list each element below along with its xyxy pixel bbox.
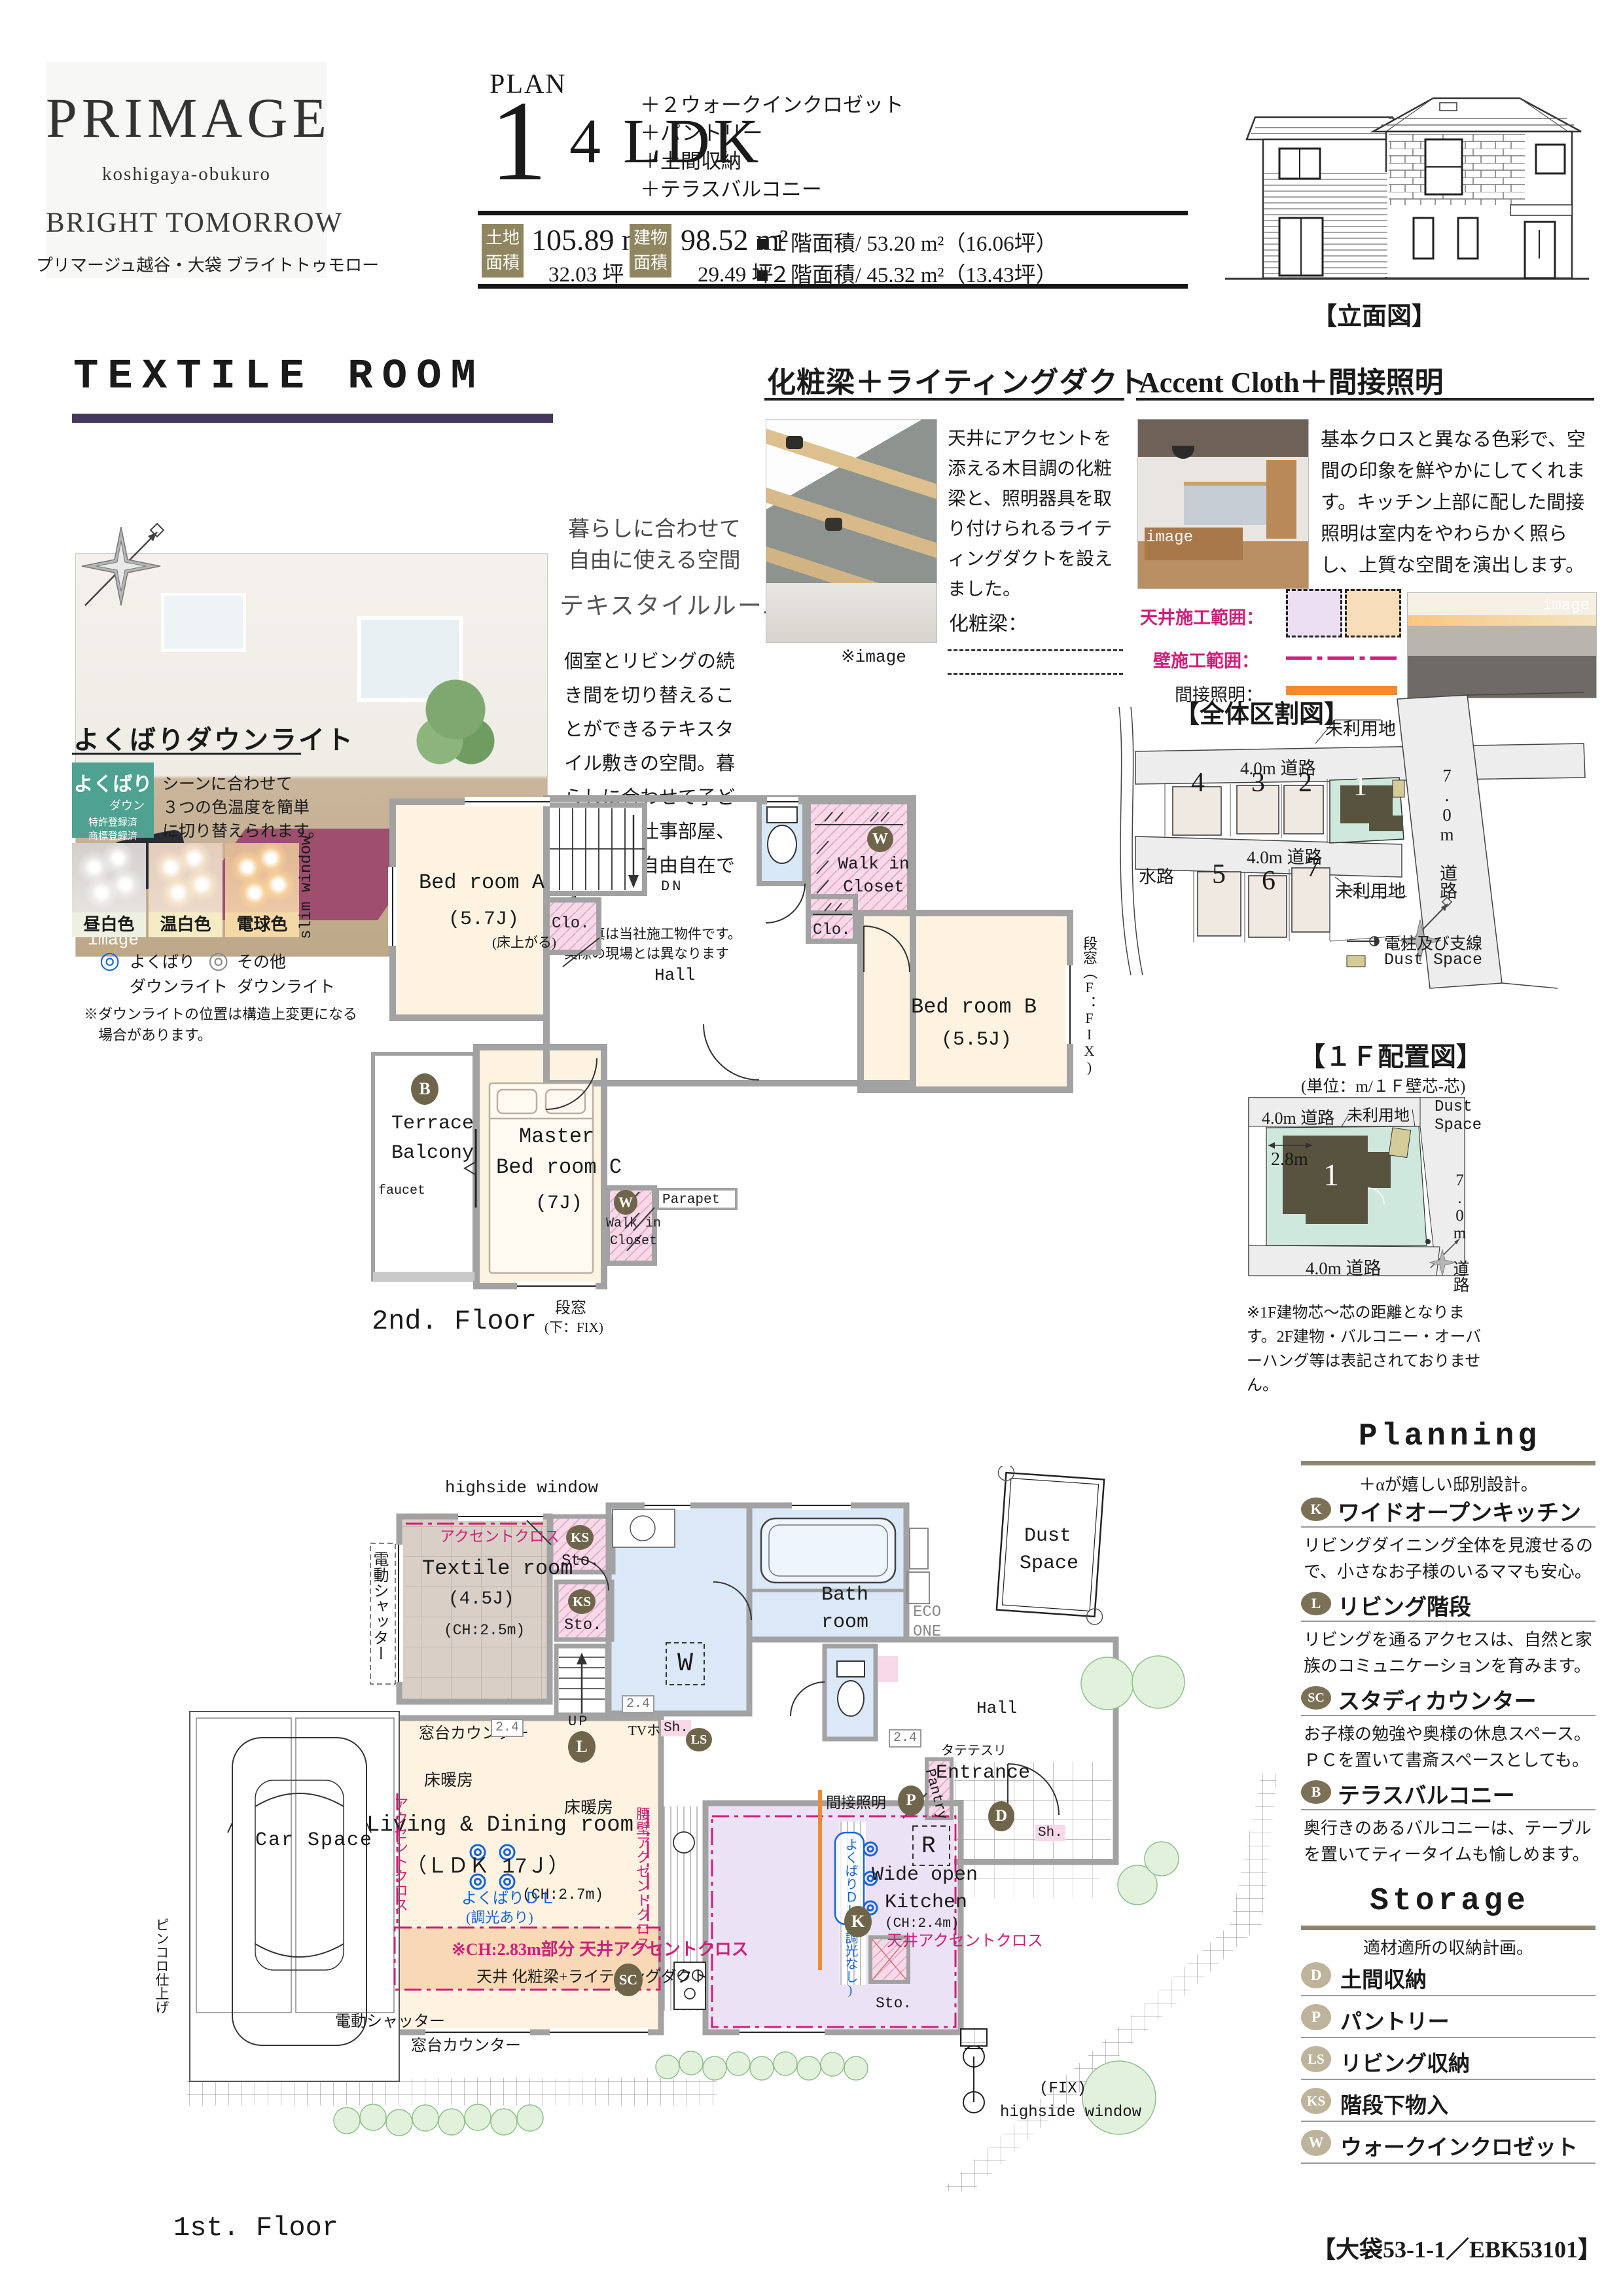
f1-accent-left: アクセントクロス — [389, 1797, 410, 1912]
plan-feature-1: ＋２ウォークインクロゼット — [640, 88, 904, 118]
sitemap-unused-top: 未利用地 — [1325, 715, 1396, 740]
f1-beam-duct: 天井 化粧梁+ライティングダクト — [476, 1964, 708, 1986]
floor1-area: ■１階面積/ 53.20 m²（16.06坪） — [756, 226, 1058, 257]
flyer-page: PRIMAGE koshigaya-obukuro BRIGHT TOMORRO… — [0, 0, 1623, 2296]
f1-bath-2: room — [821, 1611, 868, 1634]
layout1f-dim: 2.8m — [1271, 1149, 1308, 1170]
accent-title: Accent Cloth＋間接照明 — [1139, 359, 1444, 401]
storage-badge-doma: D — [1301, 1962, 1331, 1988]
footer-code: 【大袋53-1-1／EBK53101】 — [1312, 2231, 1601, 2265]
f1-k-badge: K — [844, 1906, 872, 1937]
land-area-badge: 土地面積 — [482, 224, 524, 278]
f1-ch283: ※CH:2.83m部分 天井アクセントクロス — [452, 1936, 749, 1960]
f2-caption: 2nd. Floor — [372, 1306, 537, 1337]
textile-title-bar — [72, 414, 553, 423]
planning-item-kitchen: ワイドオープンキッチン — [1338, 1495, 1581, 1527]
f1-eco-2: ONE — [913, 1623, 941, 1641]
f2-hall: Hall — [654, 965, 695, 985]
f1-textile-size: (4.5J) — [448, 1589, 514, 1609]
layout1f-road-top: 4.0m 道路 — [1262, 1105, 1334, 1129]
planning-line-1 — [1301, 1526, 1596, 1528]
f1-bath-1: Bath — [821, 1584, 868, 1606]
yokubari-badge-line2: ダウン — [72, 797, 145, 814]
f1-dim-pantry: 2.4 — [889, 1729, 921, 1748]
land-tsubo: 32.03 坪 — [548, 257, 624, 288]
textile-photo-plant — [416, 678, 495, 783]
sitemap-lot-7: 7 — [1306, 852, 1320, 884]
beam-photo — [766, 419, 937, 643]
accent-body: 基本クロスと異なる色彩で、空間の印象を鮮やかにしてくれます。キッチン上部に配した… — [1321, 424, 1596, 581]
accent-photo-pendant — [1172, 446, 1194, 459]
f1-textile-room: Textile room — [422, 1556, 573, 1581]
accent-photo-counter — [1184, 482, 1269, 525]
storage-title: Storage — [1355, 1884, 1544, 1919]
planning-desc-study: お子様の勉強や奥様の休息スペース。ＰＣを置いて書斎スペースとしても。 — [1304, 1721, 1595, 1774]
f1-highside-top: highside window — [445, 1478, 598, 1498]
sitemap-lot-2: 2 — [1298, 767, 1312, 798]
downlight-legend1-a: よくばり — [130, 949, 195, 973]
land-label-1: 土地 — [482, 226, 524, 251]
yokubari-badge-line4: 商標登録済 — [72, 829, 154, 842]
f2-closet2: Clo. — [813, 922, 851, 939]
bldg-label-2: 面積 — [630, 251, 671, 276]
f2-bedroomA: Bed room A — [419, 870, 544, 895]
plan-feature-3: ＋土間収納 — [640, 145, 741, 174]
storage-line-1 — [1301, 1995, 1596, 1996]
downlight-title: よくばりダウンライト — [73, 719, 355, 757]
f2-wic2-badge: W — [614, 1190, 637, 1215]
f1-tatetesuri: タテテスリ — [941, 1740, 1007, 1759]
f1-washroom-w: W — [677, 1649, 693, 1679]
f2-wic2-label2: Closet — [594, 1234, 673, 1249]
f1-fix-highside: highside window — [1000, 2104, 1141, 2121]
accent-title-line — [1136, 398, 1594, 401]
downlight-mode-warmwhite: 温白色 — [149, 912, 223, 937]
f1-ydl-2: (調光あり) — [466, 1906, 533, 1927]
planning-desc-balcony: 奥行きのあるバルコニーは、テーブルを置いてティータイムも愉しめます。 — [1304, 1816, 1595, 1868]
f1-eco-1: ECO — [913, 1604, 941, 1621]
f2-slim-window: slim window — [298, 836, 315, 939]
textile-h1: 暮らしに合わせて自由に使える空間 — [560, 514, 749, 577]
layout1f-note: ※1F建物芯～芯の距離となります。2F建物・バルコニー・オーバーハング等は表記さ… — [1247, 1301, 1482, 1398]
f1-indirect: 間接照明 — [826, 1790, 886, 1812]
downlight-body-2: ３つの色温度を簡単 — [162, 795, 310, 818]
f1-counter-bottom: 窓台カウンター — [411, 2032, 521, 2055]
planning-line-2 — [1301, 1621, 1596, 1622]
sitemap-lot-6: 6 — [1262, 865, 1275, 897]
planning-title-bar — [1301, 1461, 1596, 1465]
layout1f-road-bottom: 4.0m 道路 — [1306, 1254, 1382, 1280]
layout1f-title: 【１Ｆ配置図】 — [1299, 1035, 1482, 1073]
f1-dust-2: Space — [1020, 1552, 1079, 1575]
planning-item-stairs: リビング階段 — [1338, 1589, 1471, 1621]
f2-wic-label1: Walk in — [821, 854, 926, 874]
f1-ks2-badge: KS — [568, 1589, 596, 1614]
accent-legend1-swatch-lavender — [1286, 589, 1342, 637]
beam-photo-light2 — [825, 518, 842, 531]
downlight-legend2-a: その他 — [237, 949, 286, 973]
layout1f-dust-2: Space — [1435, 1117, 1482, 1134]
f2-closetA: Clo. — [552, 915, 590, 933]
layout1f-lot: 1 — [1323, 1157, 1339, 1193]
accent-legend2-label: 壁施工範囲： — [1153, 647, 1259, 672]
downlight-photo-daylight — [72, 843, 146, 912]
textile-title: TEXTILE ROOM — [73, 353, 485, 401]
f2-bedroomA-size: (5.7J) — [448, 908, 519, 931]
storage-line-4 — [1301, 2121, 1596, 2122]
f1-p-badge: P — [898, 1785, 924, 1816]
logo-name: PRIMAGE — [46, 85, 327, 151]
storage-item-doma: 土間収納 — [1340, 1962, 1427, 1994]
beam-photo-beam2 — [766, 484, 937, 566]
f1-dim-textile: 2.4 — [491, 1719, 524, 1737]
storage-item-living: リビング収納 — [1340, 2046, 1470, 2077]
bldg-label-1: 建物 — [630, 226, 671, 251]
beam-legend-label: 化粧梁： — [949, 607, 1027, 636]
yokubari-badge: よくばり ダウン 特許登録済 商標登録済 — [72, 762, 154, 838]
f2-bedroomB-size: (5.5J) — [941, 1029, 1012, 1051]
elevation-caption: 【立面図】 — [1312, 296, 1436, 332]
storage-title-bar — [1301, 1926, 1596, 1930]
layout1f-road-right: 7.0m 道路 — [1448, 1172, 1471, 1293]
f1-kitchen-2: Kitchen — [885, 1892, 967, 1914]
planning-item-study: スタディカウンター — [1338, 1683, 1537, 1715]
f2-wic-label2: Closet — [821, 877, 926, 897]
elevation-drawing — [1217, 62, 1597, 298]
downlight-legend1-icon: ◎ — [99, 946, 120, 974]
f1-dust-1: Dust — [1024, 1525, 1071, 1547]
planning-badge-stairs: L — [1301, 1592, 1331, 1615]
f2-bedroomB: Bed room B — [911, 995, 1037, 1019]
planning-line-4 — [1301, 1809, 1596, 1810]
beam-legend-dash1 — [948, 649, 1123, 651]
f2-balcony-badge: B — [411, 1073, 438, 1105]
sitemap-legend-dust: Dust Space — [1384, 950, 1482, 969]
f2-terrace-2: Balcony — [391, 1142, 474, 1164]
downlight-title-line — [72, 753, 301, 755]
f1-heat-1: 床暖房 — [424, 1767, 473, 1791]
building-area-badge: 建物面積 — [630, 224, 671, 278]
accent-legend2-line — [1286, 656, 1397, 660]
f2-master-size: (7J) — [535, 1193, 582, 1215]
f1-kitchen-1: Wide open — [872, 1864, 978, 1886]
beam-photo-note: ※image — [841, 647, 906, 667]
beam-photo-wall — [766, 583, 936, 642]
accent-photo-label: image — [1146, 529, 1193, 547]
storage-subtitle: 適材適所の収納計画。 — [1301, 1935, 1596, 1959]
layout1f-unused: 未利用地 — [1347, 1102, 1410, 1125]
sitemap-lot-3: 3 — [1251, 767, 1265, 798]
planning-item-balcony: テラスバルコニー — [1338, 1778, 1515, 1810]
f2-stairs-dn: DN — [661, 878, 683, 895]
layout1f-dust-1: Dust — [1435, 1098, 1472, 1116]
sitemap-lot-1: 1 — [1353, 771, 1367, 802]
planning-title: Planning — [1355, 1419, 1544, 1454]
sitemap-road-right: 7.0m 道路 — [1435, 766, 1460, 899]
f1-hall: Hall — [976, 1698, 1017, 1718]
storage-badge-living: LS — [1301, 2046, 1331, 2072]
floorplan-2f — [366, 776, 1099, 1345]
f1-sh1: Sh. — [661, 1720, 691, 1736]
f1-d-badge: D — [988, 1801, 1014, 1831]
beam-title-line — [764, 398, 1124, 401]
land-label-2: 面積 — [482, 251, 524, 276]
plan-feature-2: ＋パントリー — [640, 117, 763, 146]
f2-faucet: faucet — [378, 1183, 425, 1198]
accent-photo2-glow — [1408, 615, 1596, 626]
f1-pinkoro: ピンコロ仕上げ — [152, 1918, 171, 2014]
storage-line-3 — [1301, 2079, 1596, 2080]
f1-accent-cloth-top: アクセントクロス — [440, 1524, 560, 1546]
accent-photo: image — [1137, 419, 1309, 589]
downlight-legend1-b: ダウンライト — [130, 974, 228, 997]
logo-tagline: BRIGHT TOMORROW — [46, 207, 327, 239]
planning-line-3 — [1301, 1715, 1596, 1716]
beam-title: 化粧梁＋ライティングダクト — [767, 359, 1147, 401]
accent-legend1-swatch-peach — [1345, 589, 1401, 637]
header-rule-top — [478, 211, 1188, 215]
storage-badge-wic: W — [1301, 2130, 1331, 2156]
f1-kitchen-ch: (CH:2.4m) — [885, 1916, 959, 1931]
sitemap-lot-5: 5 — [1212, 859, 1226, 890]
planning-badge-kitchen: K — [1301, 1498, 1331, 1521]
planning-desc-stairs: リビングを通るアクセスは、自然と家族のコミュニケーションを育みます。 — [1304, 1627, 1595, 1679]
f1-koshikabe: 腰壁アクセントクロス — [632, 1806, 652, 1950]
storage-line-2 — [1301, 2037, 1596, 2038]
f1-dim-wash: 2.4 — [622, 1695, 654, 1713]
downlight-legend2-icon: ◎ — [208, 946, 228, 974]
downlight-mode-bulb: 電球色 — [225, 912, 299, 937]
storage-badge-pantry: P — [1301, 2004, 1331, 2030]
compass-2f — [65, 507, 177, 625]
downlight-mode-daylight: 昼白色 — [72, 912, 146, 937]
planning-badge-study: SC — [1301, 1686, 1331, 1710]
beam-body: 天井にアクセントを添える木目調の化粧梁と、照明器具を取り付けられるライティングダ… — [948, 424, 1123, 605]
f1-ls-badge: LS — [686, 1728, 712, 1751]
storage-badge-understairs: KS — [1301, 2088, 1331, 2114]
sitemap-unused-right: 未利用地 — [1335, 877, 1406, 903]
f2-window-bottom-2: (下：FIX) — [544, 1317, 603, 1336]
f1-shutter-bottom: 電動シャッター — [335, 2008, 445, 2031]
f2-floor-up-note: (床上がる) — [492, 932, 556, 952]
f1-ks1-sto: Sto. — [562, 1552, 599, 1570]
planning-subtitle: ＋αが嬉しい邸別設計。 — [1301, 1471, 1596, 1496]
beam-photo-light1 — [786, 436, 803, 449]
f2-terrace-1: Terrace — [391, 1113, 474, 1135]
f2-window-right: 段窓（F：FIX) — [1079, 936, 1099, 1075]
accent-legend1-label: 天井施工範囲： — [1140, 603, 1264, 629]
f1-car-space: Car Space — [255, 1829, 373, 1852]
f2-parapet: Parapet — [662, 1193, 720, 1208]
downlight-body-1: シーンに合わせて — [162, 771, 293, 795]
storage-item-understairs: 階段下物入 — [1340, 2088, 1448, 2119]
f1-sh2: Sh. — [1035, 1825, 1065, 1841]
yokubari-badge-line1: よくばり — [72, 768, 154, 797]
sitemap-lot-4: 4 — [1191, 767, 1205, 798]
floor2-area: ■２階面積/ 45.32 m²（13.43坪） — [756, 257, 1058, 289]
f1-sto3: Sto. — [876, 1995, 912, 2012]
f1-caption: 1st. Floor — [173, 2212, 338, 2244]
f1-ldk-size: （ＬＤＫ 17Ｊ） — [406, 1849, 569, 1879]
downlight-photo-warmwhite — [149, 843, 223, 912]
textile-h2: テキスタイルルーム — [560, 586, 749, 621]
f1-shutter-left: 電動シャッター — [368, 1551, 391, 1661]
f1-ks2-sto: Sto. — [564, 1617, 602, 1634]
downlight-legend2-b: ダウンライト — [237, 974, 335, 997]
f2-wic2-label1: Walk in — [594, 1216, 673, 1231]
logo-tagline-jp: プリマージュ越谷・大袋 ブライトトゥモロー — [36, 252, 337, 276]
f1-sc-badge: SC — [614, 1964, 643, 1996]
f1-up: UP — [568, 1713, 589, 1730]
storage-item-wic: ウォークインクロゼット — [1340, 2130, 1578, 2161]
plan-feature-4: ＋テラスバルコニー — [640, 173, 822, 202]
f1-fix: (FIX) — [1039, 2080, 1086, 2098]
sitemap-waterway: 水路 — [1139, 863, 1174, 888]
accent-photo2-label: image — [1543, 597, 1590, 615]
f2-master-1: Master — [519, 1124, 594, 1149]
f1-textile-ch: (CH:2.5m) — [444, 1622, 525, 1639]
storage-item-pantry: パントリー — [1340, 2004, 1450, 2036]
f2-window-bottom-1: 段窓 — [555, 1295, 586, 1318]
planning-badge-balcony: B — [1301, 1780, 1331, 1804]
yokubari-badge-line3: 特許登録済 — [72, 815, 154, 829]
downlight-note-2: 場合があります。 — [98, 1024, 212, 1045]
f2-master-2: Bed room C — [496, 1155, 622, 1179]
f1-ks1-badge: KS — [566, 1525, 594, 1550]
f1-refrigerator: R — [921, 1833, 936, 1859]
beam-legend-dash2 — [948, 673, 1123, 675]
downlight-note-1: ※ダウンライトの位置は構造上変更になる — [84, 1003, 357, 1024]
accent-photo-door — [1266, 460, 1296, 539]
downlight-photo-bulb — [225, 843, 299, 912]
planning-desc-kitchen: リビングダイニング全体を見渡せるので、小さなお子様のいるママも安心。 — [1304, 1533, 1595, 1585]
f2-wic-badge: W — [867, 826, 893, 852]
storage-line-5 — [1301, 2162, 1596, 2164]
f1-l-badge: L — [568, 1731, 596, 1763]
logo-sub: koshigaya-obukuro — [46, 164, 327, 185]
plan-number: 1 — [481, 79, 556, 203]
f1-entrance: Entrance — [936, 1762, 1030, 1784]
f1-ydl-1: よくばりＤＬ — [461, 1885, 556, 1908]
